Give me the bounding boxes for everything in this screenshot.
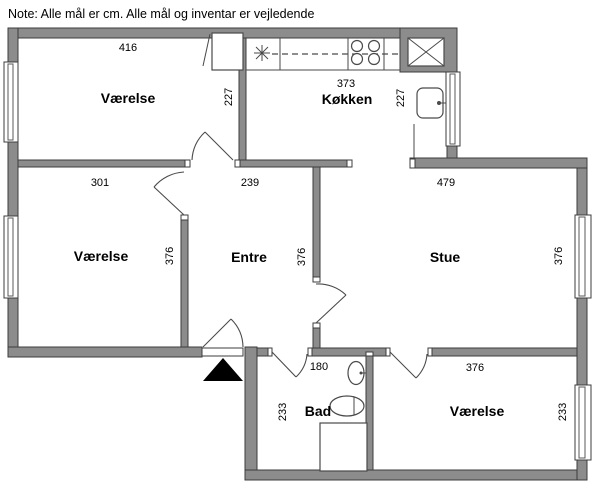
- door-entre-stue: [316, 284, 346, 323]
- wall-w-entre: [181, 215, 188, 347]
- dim-label: 376: [296, 248, 308, 266]
- entrance-door: [202, 348, 243, 356]
- wall-mid-b: [235, 160, 352, 167]
- sink-symbol-icon: [254, 45, 270, 61]
- toilet-icon: [330, 396, 364, 416]
- window-nw: [4, 62, 18, 142]
- dim-label: 376: [466, 362, 484, 374]
- vent-shaft-icon: [408, 38, 444, 66]
- wardrobe-icon: [203, 33, 243, 70]
- wall-bottom: [245, 470, 587, 480]
- door-leaf: [390, 352, 416, 378]
- floor-plan: Note: Alle mål er cm. Alle mål og invent…: [0, 0, 600, 492]
- dim-label: 376: [553, 247, 565, 265]
- door-leaf: [205, 132, 233, 160]
- window-stue: [575, 215, 591, 298]
- wall-bottom-left: [8, 347, 202, 357]
- window-se: [575, 385, 591, 460]
- door-swing-icon: [192, 132, 205, 160]
- wall-mid-a: [18, 160, 190, 167]
- room-label: Entre: [231, 249, 267, 265]
- window-w: [4, 216, 18, 298]
- room-label: Værelse: [450, 403, 505, 419]
- door-bad: [272, 352, 307, 377]
- note-text: Note: Alle mål er cm. Alle mål og invent…: [8, 7, 314, 21]
- door-w-vaerelse: [154, 172, 184, 215]
- door-leaf: [272, 352, 296, 377]
- dim-label: 479: [437, 177, 455, 189]
- door-swing-icon: [154, 172, 184, 187]
- door-leaf: [154, 187, 184, 215]
- dim-label: 416: [119, 42, 137, 54]
- cooktop-icon: [352, 41, 380, 65]
- door-nw-vaerelse: [192, 132, 233, 160]
- dim-label: 233: [277, 403, 289, 421]
- door-entrance: [202, 319, 243, 381]
- door-leaf: [203, 319, 231, 347]
- dim-label: 227: [223, 88, 235, 106]
- door-swing-icon: [296, 354, 307, 377]
- door-se-vaerelse: [390, 352, 427, 378]
- door-swing-icon: [316, 284, 346, 295]
- wall-stue-top: [410, 158, 587, 168]
- room-label: Værelse: [74, 248, 129, 264]
- room-label: Stue: [430, 249, 461, 265]
- kitchen-sink-icon: [417, 88, 446, 118]
- room-label: Værelse: [101, 90, 156, 106]
- room-label: Køkken: [322, 91, 373, 107]
- dim-label: 180: [310, 361, 328, 373]
- wall-entre-stue-upper: [313, 167, 320, 282]
- wall-bath-top: [308, 348, 390, 356]
- shower-icon: [320, 423, 367, 471]
- dim-label: 376: [164, 247, 176, 265]
- dim-label: 227: [395, 89, 407, 107]
- room-label: Bad: [305, 403, 331, 419]
- door-swing-icon: [416, 354, 427, 378]
- wall-bath-left: [245, 347, 257, 480]
- dim-label: 239: [241, 177, 259, 189]
- wash-basin-icon: [348, 362, 366, 385]
- window-kitchen: [446, 72, 460, 146]
- door-swing-icon: [231, 319, 243, 347]
- labels: 416 Værelse 227 373 Køkken 227 301 Værel…: [74, 42, 569, 421]
- door-leaf: [316, 295, 346, 323]
- dim-label: 233: [557, 403, 569, 421]
- dim-label: 301: [91, 177, 109, 189]
- wall-se-top: [428, 348, 577, 356]
- dim-label: 373: [337, 78, 355, 90]
- entrance-arrow-icon: [203, 358, 243, 381]
